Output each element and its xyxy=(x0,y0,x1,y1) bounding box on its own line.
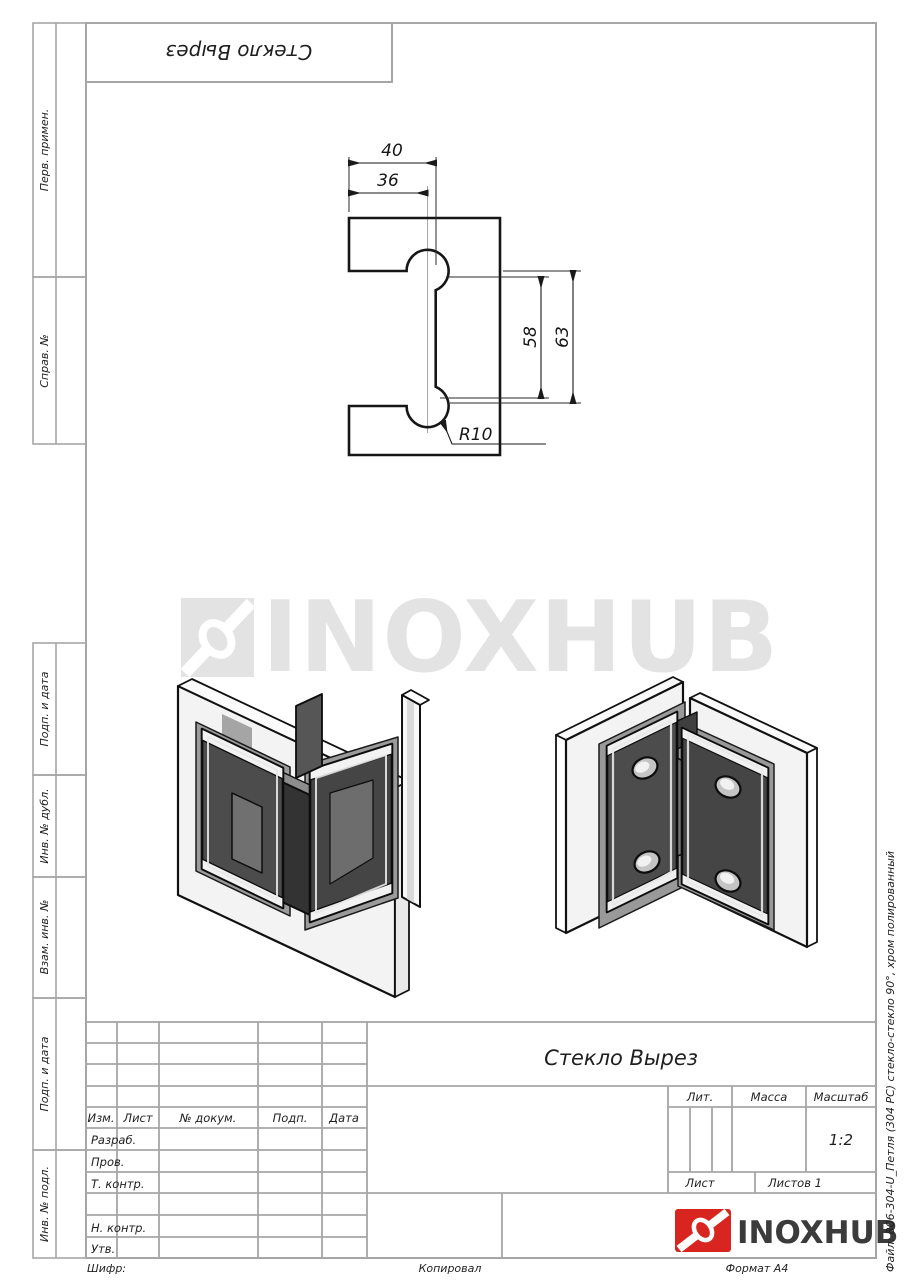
dim-40: 40 xyxy=(381,141,403,161)
col-ndok: № докум. xyxy=(179,1111,237,1125)
col-podp: Подп. xyxy=(273,1111,308,1125)
listov-label: Листов 1 xyxy=(767,1176,822,1190)
margin-label-invpodl: Инв. № подл. xyxy=(38,1166,51,1242)
margin-label-invdubl: Инв. № дубл. xyxy=(38,788,51,863)
row-tkontr: Т. контр. xyxy=(91,1177,145,1191)
margin-label-podp1: Подп. и дата xyxy=(38,671,51,746)
margin-label-podp2: Подп. и дата xyxy=(38,1036,51,1111)
watermark-text: INOXHUB xyxy=(262,581,779,695)
title-block: Стекло Вырез Изм. Лист № докум. Подп. Да… xyxy=(86,1022,898,1258)
dimension-drawing: 40 36 58 63 R10 xyxy=(349,141,581,455)
file-note-vertical: Файл: 806-304-U_Петля (304 PC) стекло-ст… xyxy=(884,851,897,1272)
top-stamp-text: Стекло Вырез xyxy=(166,40,313,64)
list-label: Лист xyxy=(684,1176,714,1190)
lit-label: Лит. xyxy=(686,1090,713,1104)
col-data: Дата xyxy=(328,1111,359,1125)
row-prov: Пров. xyxy=(91,1155,124,1169)
footer-shifr: Шифр: xyxy=(87,1262,126,1275)
sheet-canvas: INOXHUB Стекло Вырез Перв. примен. Справ… xyxy=(0,0,905,1280)
dim-36: 36 xyxy=(377,171,399,191)
row-utv: Утв. xyxy=(91,1242,115,1256)
margin-column: Перв. примен. Справ. № Подп. и дата Инв.… xyxy=(33,23,86,1258)
masshtab-label: Масштаб xyxy=(814,1090,869,1104)
margin-label-vzam: Взам. инв. № xyxy=(38,900,51,975)
doc-title: Стекло Вырез xyxy=(544,1046,698,1070)
inoxhub-logo-text: INOXHUB xyxy=(737,1215,898,1251)
massa-label: Масса xyxy=(751,1090,788,1104)
col-list: Лист xyxy=(122,1111,152,1125)
watermark: INOXHUB xyxy=(181,581,779,695)
dim-58: 58 xyxy=(521,326,541,348)
row-razrab: Разраб. xyxy=(91,1133,136,1147)
margin-label-perv: Перв. примен. xyxy=(38,109,51,192)
scale-value: 1:2 xyxy=(829,1131,853,1149)
footer-format: Формат А4 xyxy=(726,1262,789,1275)
drawing-sheet: INOXHUB Стекло Вырез Перв. примен. Справ… xyxy=(0,0,905,1280)
dim-63: 63 xyxy=(553,326,573,348)
inoxhub-logo: INOXHUB xyxy=(675,1209,898,1252)
row-nkontr: Н. контр. xyxy=(91,1221,146,1235)
footer-kopiroval: Копировал xyxy=(419,1262,482,1275)
isometric-view-left xyxy=(178,679,429,997)
part-outline xyxy=(349,218,500,455)
col-izm: Изм. xyxy=(87,1111,114,1125)
dim-r10: R10 xyxy=(459,425,492,445)
margin-label-sprav: Справ. № xyxy=(38,334,51,388)
isometric-view-right xyxy=(556,677,817,947)
